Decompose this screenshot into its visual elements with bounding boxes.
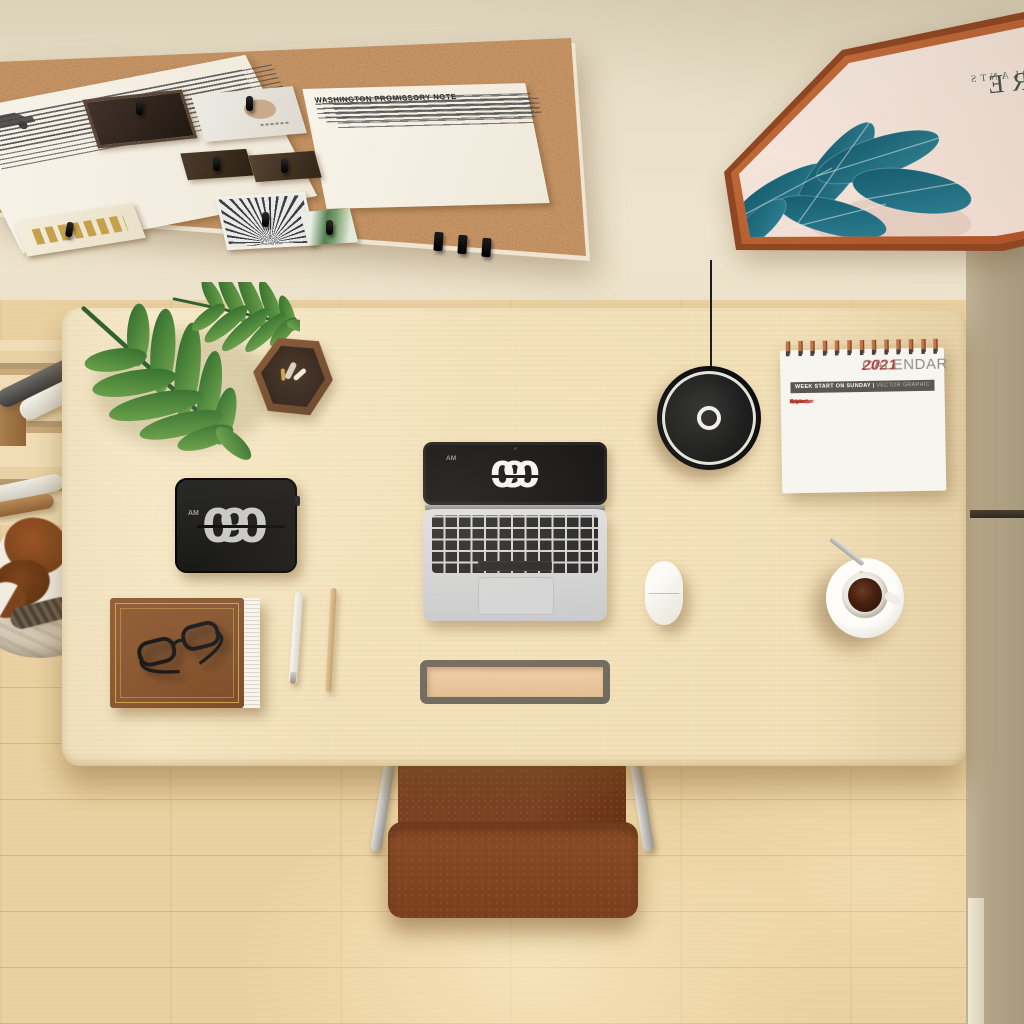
calendar-word: CALENDAR <box>862 356 948 374</box>
binder-clip-icon <box>433 232 443 252</box>
push-pin-icon <box>326 220 333 235</box>
lamp-center-ring <box>697 406 721 430</box>
spacebar-key[interactable] <box>478 561 552 571</box>
pen-tip <box>290 672 297 684</box>
poster-mirrored-text: RE PLANTS <box>918 66 1024 77</box>
hexagon-wall-frame: RE PLANTS <box>720 10 1024 260</box>
binder-clip-icon <box>481 238 491 258</box>
push-pin-icon <box>213 156 220 171</box>
wall-groove <box>970 510 1024 518</box>
push-pin-icon <box>246 96 253 111</box>
wireless-mouse[interactable] <box>645 561 683 625</box>
laptop-trackpad[interactable] <box>478 577 554 615</box>
desk-calendar: 2021 CALENDAR WEEK START ON SUNDAY | VEC… <box>780 339 947 494</box>
clock-side-button <box>295 496 300 506</box>
laptop-screen: AM 9 00 <box>423 442 607 505</box>
calendar-month-grid: January February March April May Ju <box>790 397 938 488</box>
flip-card-split-line <box>466 475 576 478</box>
lamp-arm-wire <box>710 260 712 372</box>
pencil-icon <box>281 368 286 380</box>
push-pin-icon <box>262 212 269 227</box>
recessed-desk-tray <box>420 660 610 704</box>
promissory-note-document: WASHINGTON PROMISSORY NOTE <box>302 83 549 209</box>
coffee-liquid <box>848 578 882 612</box>
calendar-subtitle: WEEK START ON SUNDAY | <box>795 383 875 390</box>
note-text-lines <box>332 93 534 128</box>
laptop-keyboard-deck <box>423 509 607 621</box>
hexagonal-pen-holder <box>248 333 338 419</box>
desk-flip-clock: AM 9 00 <box>175 478 297 573</box>
mouse-seam <box>649 593 679 594</box>
dark-photo <box>82 89 197 148</box>
gold-script-decoration <box>32 215 129 245</box>
flip-card-split-line <box>197 525 285 528</box>
baseboard <box>968 898 984 1024</box>
desk-scene: WASHINGTON PROMISSORY NOTE <box>0 0 1024 1024</box>
calendar-subtitle-light: VECTOR GRAPHIC <box>874 382 930 389</box>
dog-photo <box>191 86 307 142</box>
teal-leaves-illustration <box>720 105 1020 255</box>
push-pin-icon <box>281 158 288 173</box>
push-pin-icon <box>136 100 143 115</box>
chair-seat <box>388 822 638 918</box>
binder-clip-icon <box>457 235 467 255</box>
month-name: December <box>790 399 813 405</box>
round-desk-lamp[interactable] <box>657 366 761 470</box>
photo-signature <box>260 121 290 126</box>
